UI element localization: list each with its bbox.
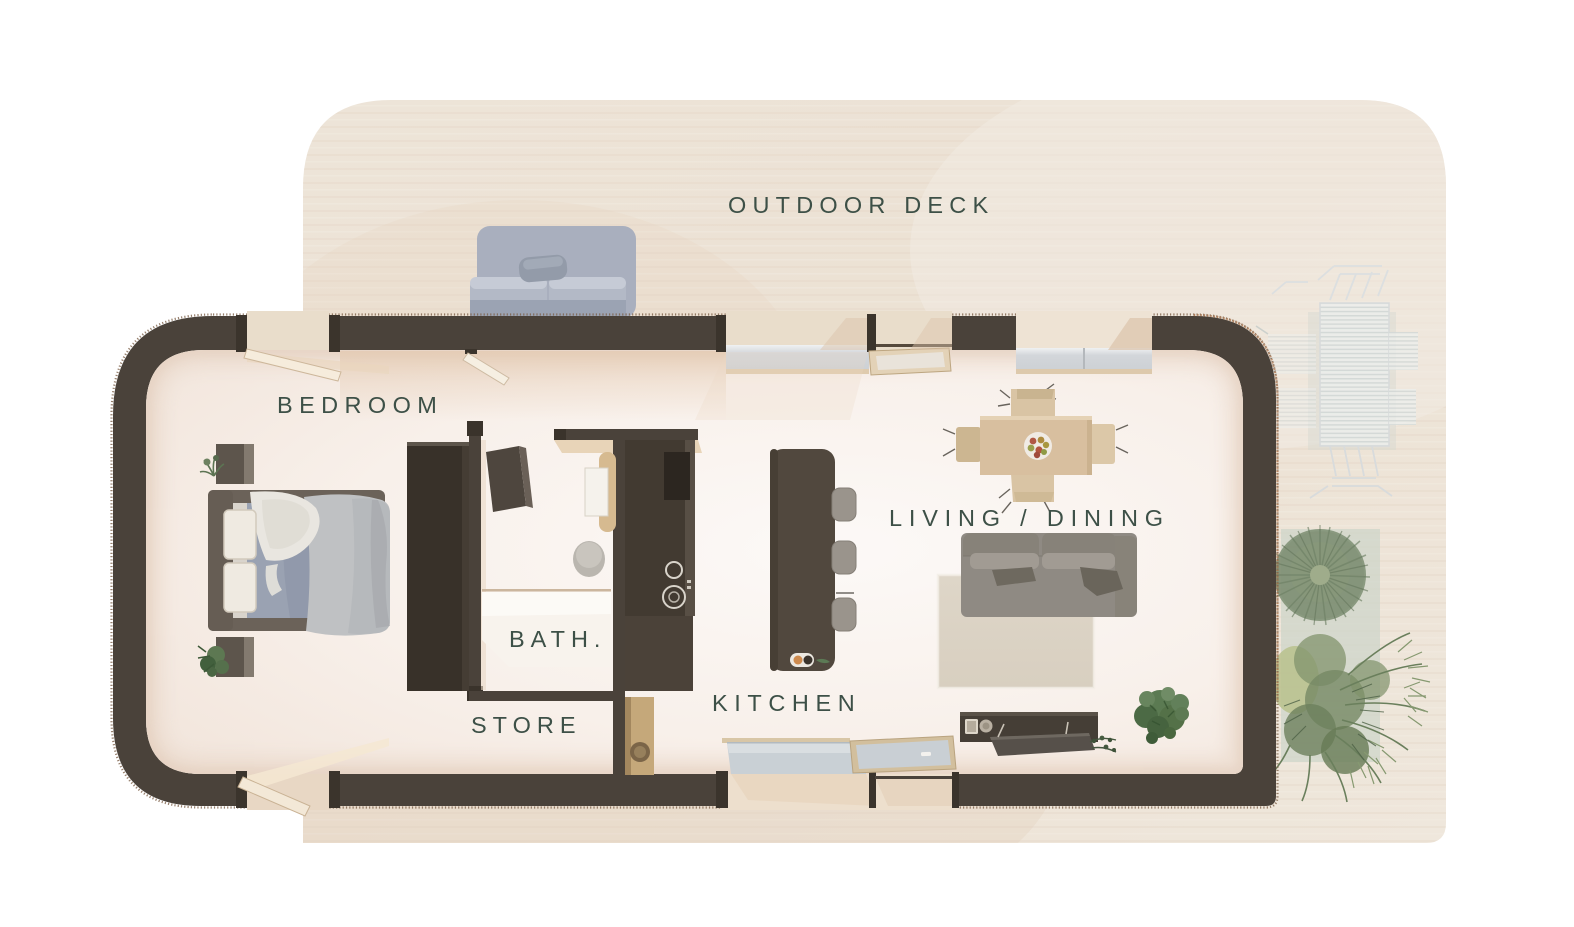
svg-text:STORE: STORE (471, 712, 582, 738)
svg-text:BATH.: BATH. (509, 626, 606, 652)
svg-text:BEDROOM: BEDROOM (277, 392, 443, 418)
svg-text:OUTDOOR DECK: OUTDOOR DECK (728, 192, 994, 218)
svg-text:LIVING / DINING: LIVING / DINING (889, 505, 1170, 531)
svg-text:KITCHEN: KITCHEN (712, 690, 861, 716)
